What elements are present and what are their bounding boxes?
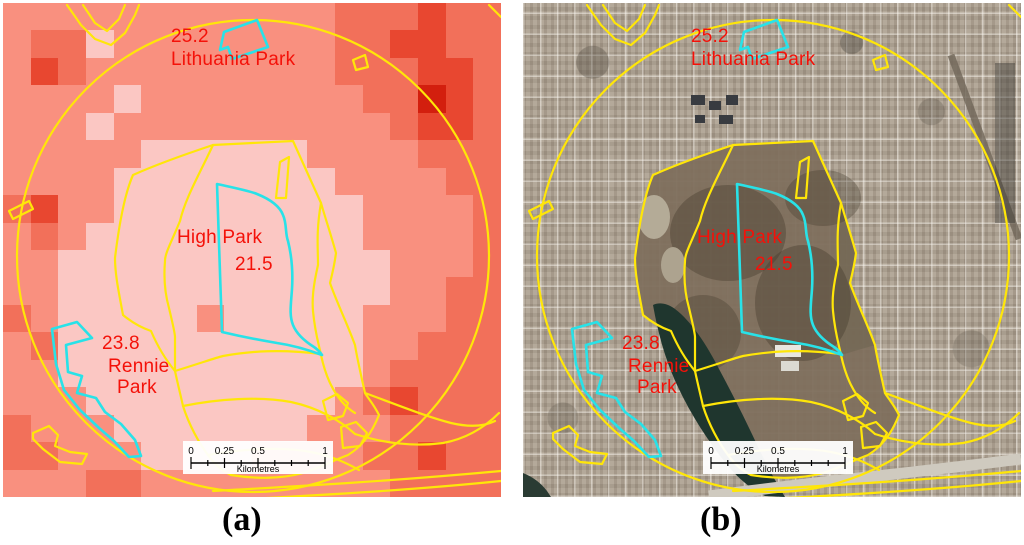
inner-east-line — [833, 203, 875, 413]
map-overlay: 0 0.25 0.5 1 Kilometres — [523, 3, 1021, 497]
southeast-blob-1 — [323, 394, 348, 420]
south-curve-1 — [703, 399, 875, 434]
corner-road-line — [1009, 5, 1021, 17]
scale-tick-05: 0.5 — [251, 446, 265, 457]
scale-bar: 0 0.25 0.5 1 Kilometres — [703, 441, 853, 474]
bottom-road-2 — [231, 481, 501, 497]
highpark-study-loop — [737, 184, 842, 355]
rennie-park-outline — [52, 322, 141, 457]
inner-west-line — [684, 145, 733, 371]
top-park-outline-inner — [603, 5, 645, 31]
small-triangle-outline — [353, 55, 368, 70]
inner-east-line — [313, 203, 355, 413]
caption-a: (a) — [222, 501, 262, 539]
highpark-study-loop — [217, 184, 322, 355]
caption-b: (b) — [700, 501, 742, 539]
small-triangle-outline — [873, 55, 888, 70]
mid-cross-line — [175, 351, 321, 371]
scale-tick-0: 0 — [708, 446, 714, 457]
lithuania-park-outline — [220, 20, 268, 59]
corner-road-line — [489, 5, 501, 17]
inner-west-line — [164, 145, 213, 371]
panel-a-overlay: 0 0.25 0.5 1 Kilometres — [3, 3, 501, 497]
east-tail-1 — [365, 393, 495, 426]
panel-a-heatmap-map: 0 0.25 0.5 1 Kilometres 25.2 Lithuania P… — [3, 3, 501, 497]
map-overlay: 0 0.25 0.5 1 Kilometres — [3, 3, 501, 497]
southeast-blob-2 — [341, 422, 367, 448]
boot-park-outline — [553, 426, 607, 464]
buffer-circle — [537, 20, 1009, 492]
top-park-outline — [587, 5, 659, 45]
southeast-blob-1 — [843, 394, 868, 420]
bottom-road-2 — [751, 481, 1021, 497]
top-park-outline-inner — [83, 5, 125, 31]
rennie-park-outline — [572, 322, 661, 457]
top-park-outline — [67, 5, 139, 45]
east-tail-2 — [875, 413, 1019, 445]
scale-tick-025: 0.25 — [215, 446, 235, 457]
mid-cross-line — [695, 351, 841, 371]
scale-tick-1: 1 — [322, 446, 328, 457]
boot-park-outline — [33, 426, 87, 464]
southeast-blob-2 — [861, 422, 887, 448]
buffer-circle — [17, 20, 489, 492]
scale-tick-025: 0.25 — [735, 446, 755, 457]
scale-unit-label: Kilometres — [237, 464, 280, 474]
scale-unit-label: Kilometres — [757, 464, 800, 474]
scale-tick-05: 0.5 — [771, 446, 785, 457]
scale-tick-0: 0 — [188, 446, 194, 457]
east-tail-1 — [885, 393, 1015, 426]
scale-tick-1: 1 — [842, 446, 848, 457]
east-tail-2 — [355, 413, 499, 445]
narrow-strip-outline — [796, 157, 809, 198]
scale-bar: 0 0.25 0.5 1 Kilometres — [183, 441, 333, 474]
narrow-strip-outline — [276, 157, 289, 198]
panel-b-overlay: 0 0.25 0.5 1 Kilometres — [523, 3, 1021, 497]
south-curve-1 — [183, 399, 355, 434]
lithuania-park-outline — [740, 20, 788, 59]
figure-canvas: { "figure": { "caption_a": "(a)", "capti… — [0, 0, 1024, 545]
panel-b-aerial-map: 0 0.25 0.5 1 Kilometres 25.2 Lithuania P… — [523, 3, 1021, 497]
